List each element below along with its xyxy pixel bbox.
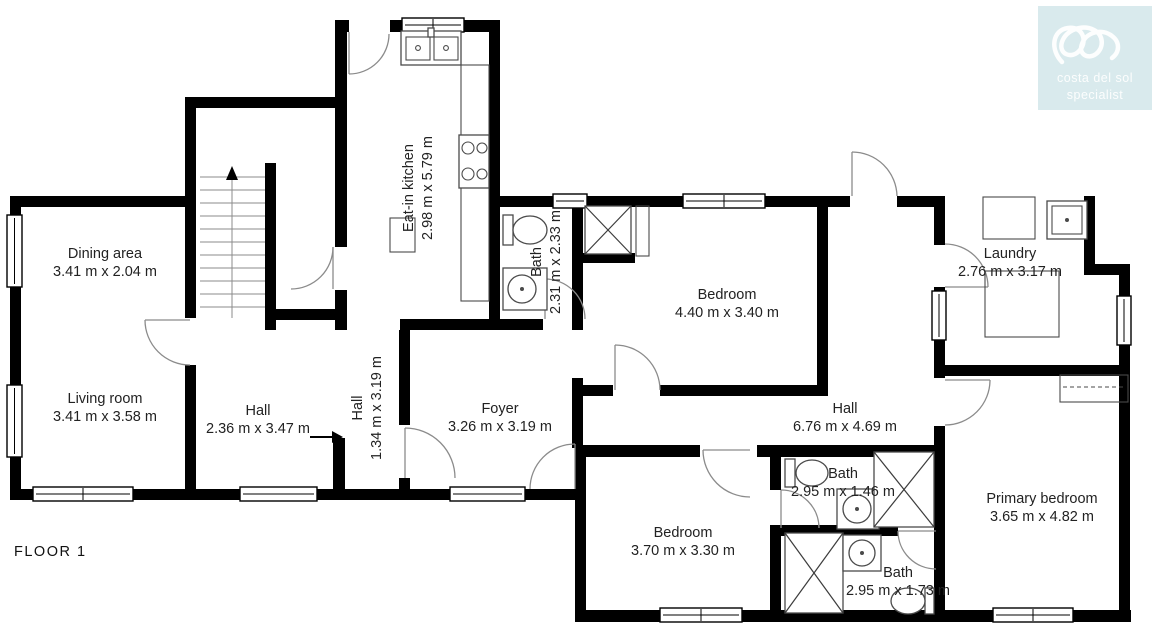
shower-icon	[785, 533, 843, 613]
window	[7, 385, 22, 457]
sink-icon	[1047, 201, 1087, 239]
door-swing	[898, 531, 936, 569]
laundry-unit	[985, 271, 1059, 337]
room-label-bath-2: Bath	[828, 466, 858, 482]
window	[1117, 296, 1131, 345]
room-dims-bath-1: 2.31 m x 2.33 m	[548, 210, 564, 314]
room-dims-primary-bedroom: 3.65 m x 4.82 m	[990, 509, 1094, 525]
room-label-laundry: Laundry	[984, 246, 1037, 262]
room-label-bath-1: Bath	[529, 247, 545, 277]
window	[553, 194, 587, 208]
door-swing	[945, 380, 990, 425]
logo-line2: specialist	[1067, 88, 1123, 102]
staircase	[200, 166, 265, 318]
room-label-living-room: Living room	[68, 391, 143, 407]
window	[450, 487, 525, 501]
door-swing	[615, 345, 660, 390]
door-swing	[145, 320, 190, 365]
window	[33, 487, 133, 501]
floorplan-page: Dining area 3.41 m x 2.04 m Living room …	[0, 0, 1160, 640]
door-swing	[703, 450, 750, 497]
window	[932, 291, 946, 340]
room-label-dining-area: Dining area	[68, 246, 143, 262]
room-label-kitchen: Eat-in kitchen	[401, 144, 417, 232]
floorplan-drawing: Dining area 3.41 m x 2.04 m Living room …	[0, 0, 1160, 640]
window	[683, 194, 765, 208]
room-dims-kitchen: 2.98 m x 5.79 m	[420, 136, 436, 240]
room-label-hall-1: Hall	[246, 403, 271, 419]
room-dims-hall-3: 6.76 m x 4.69 m	[793, 419, 897, 435]
stairs-up-arrow-icon	[226, 166, 238, 180]
laundry-counter	[983, 197, 1035, 239]
brand-logo: costa del sol specialist	[1038, 6, 1152, 110]
room-dims-living-room: 3.41 m x 3.58 m	[53, 409, 157, 425]
room-dims-bath-2: 2.95 m x 1.46 m	[791, 484, 895, 500]
window	[240, 487, 317, 501]
room-dims-hall-1: 2.36 m x 3.47 m	[206, 421, 310, 437]
logo-line1: costa del sol	[1057, 71, 1133, 85]
room-label-bedroom-1: Bedroom	[698, 287, 757, 303]
window	[660, 608, 742, 622]
walls	[10, 20, 1131, 622]
cabinet	[636, 206, 649, 256]
floor-label: FLOOR 1	[14, 544, 87, 560]
room-label-hall-3: Hall	[833, 401, 858, 417]
toilet-icon	[503, 215, 547, 245]
kitchen-sink-icon	[401, 28, 461, 65]
room-dims-foyer: 3.26 m x 3.19 m	[448, 419, 552, 435]
room-dims-bath-3: 2.95 m x 1.73 m	[846, 583, 950, 599]
sink-icon	[843, 535, 881, 571]
window	[7, 215, 22, 287]
room-dims-hall-2: 1.34 m x 3.19 m	[369, 356, 385, 460]
door-swing	[852, 152, 897, 196]
room-dims-laundry: 2.76 m x 3.17 m	[958, 264, 1062, 280]
door-swing	[405, 428, 455, 478]
room-dims-bedroom-2: 3.70 m x 3.30 m	[631, 543, 735, 559]
room-dims-dining-area: 3.41 m x 2.04 m	[53, 264, 157, 280]
toilet-icon	[785, 459, 828, 487]
door-swing	[349, 32, 389, 74]
primary-closet	[1060, 375, 1128, 402]
stove-icon	[459, 135, 489, 188]
room-label-foyer: Foyer	[481, 401, 518, 417]
door-swing	[530, 444, 575, 489]
room-label-primary-bedroom: Primary bedroom	[986, 491, 1097, 507]
room-label-bath-3: Bath	[883, 565, 913, 581]
room-label-bedroom-2: Bedroom	[654, 525, 713, 541]
shower-icon	[585, 206, 631, 254]
room-label-hall-2: Hall	[350, 396, 366, 421]
door-swing	[291, 247, 333, 289]
window	[993, 608, 1073, 622]
room-dims-bedroom-1: 4.40 m x 3.40 m	[675, 305, 779, 321]
